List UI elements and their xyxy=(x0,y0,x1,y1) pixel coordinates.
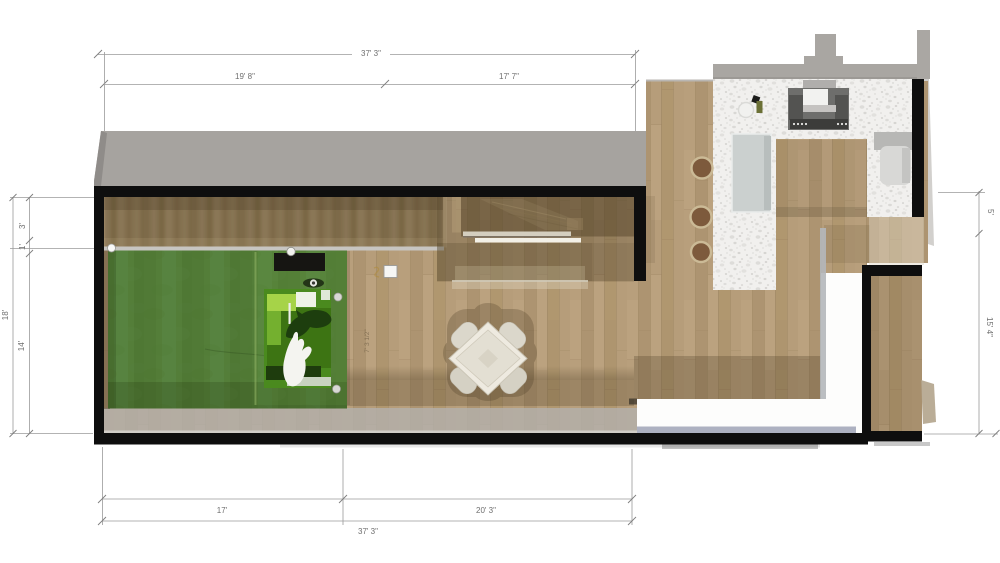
svg-text:1': 1' xyxy=(18,244,27,250)
svg-text:5': 5' xyxy=(986,209,995,215)
svg-text:37' 3": 37' 3" xyxy=(361,49,381,58)
svg-text:15' 4": 15' 4" xyxy=(985,317,994,337)
svg-text:14': 14' xyxy=(17,340,26,351)
svg-text:17': 17' xyxy=(217,506,228,515)
svg-text:20' 3": 20' 3" xyxy=(476,506,496,515)
svg-text:17' 7": 17' 7" xyxy=(499,72,519,81)
svg-text:19' 8": 19' 8" xyxy=(235,72,255,81)
svg-text:37' 3": 37' 3" xyxy=(358,527,378,536)
svg-text:7' 3 1/2": 7' 3 1/2" xyxy=(364,329,371,353)
svg-text:18': 18' xyxy=(1,309,10,320)
svg-text:3': 3' xyxy=(18,223,27,229)
